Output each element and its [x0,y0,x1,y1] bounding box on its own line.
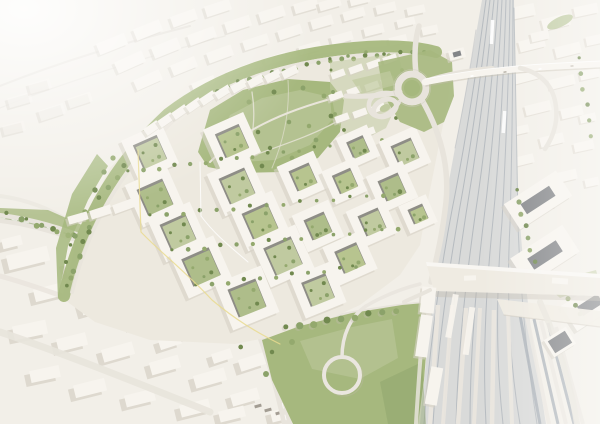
aerial-view-svg [0,0,600,424]
masterplan-aerial-rendering [0,0,600,424]
haze [0,0,600,424]
haze-right [0,0,600,424]
